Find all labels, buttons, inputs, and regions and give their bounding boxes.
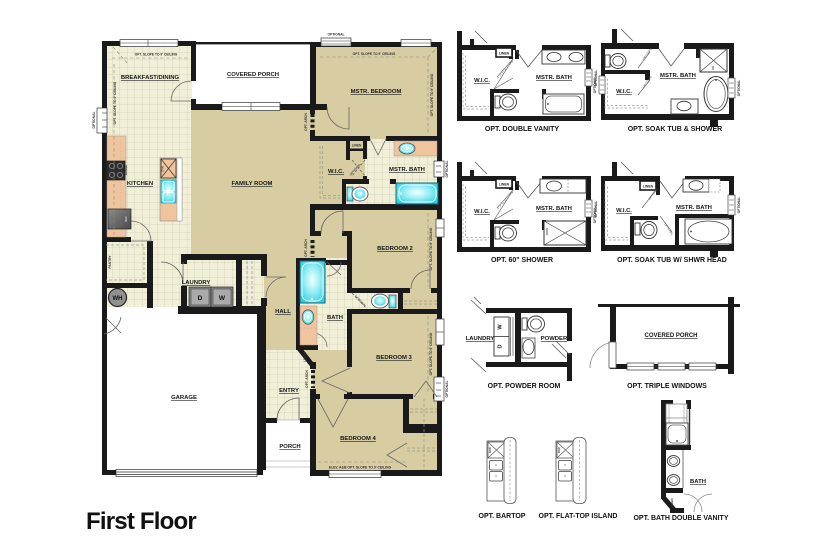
- svg-text:BEDROOM 3: BEDROOM 3: [376, 355, 412, 361]
- svg-text:ELEV. A&B OPT. SLOPE TO 9' CEI: ELEV. A&B OPT. SLOPE TO 9' CEILING: [329, 466, 392, 470]
- svg-text:D: D: [198, 295, 203, 302]
- svg-text:BATH: BATH: [690, 479, 706, 485]
- svg-text:GARAGE: GARAGE: [171, 395, 197, 401]
- svg-text:OPTIONAL: OPTIONAL: [593, 77, 597, 94]
- svg-text:LINEN: LINEN: [670, 499, 674, 508]
- svg-text:OPT. SLOPE TO 9' CEILING: OPT. SLOPE TO 9' CEILING: [113, 81, 117, 124]
- svg-text:LINEN: LINEN: [303, 352, 307, 362]
- svg-text:FAMILY ROOM: FAMILY ROOM: [232, 181, 273, 187]
- svg-text:OPT. SOAK TUB W/ SHWR HEAD: OPT. SOAK TUB W/ SHWR HEAD: [617, 257, 727, 264]
- svg-text:RANGE: RANGE: [124, 165, 128, 175]
- svg-text:OPT. ARCH: OPT. ARCH: [305, 370, 309, 388]
- svg-text:D/W: D/W: [488, 447, 492, 453]
- svg-text:OPT. SLOPE TO 9' CEILING: OPT. SLOPE TO 9' CEILING: [429, 332, 433, 375]
- svg-text:D/W: D/W: [161, 166, 165, 172]
- svg-text:MSTR. BEDROOM: MSTR. BEDROOM: [351, 89, 402, 95]
- svg-text:OPTIONAL: OPTIONAL: [92, 111, 96, 128]
- svg-text:BEDROOM 2: BEDROOM 2: [377, 246, 413, 252]
- svg-text:OPT. TRIPLE WINDOWS: OPT. TRIPLE WINDOWS: [627, 383, 707, 390]
- svg-text:COVERED PORCH: COVERED PORCH: [644, 333, 697, 339]
- svg-text:W.I.C.: W.I.C.: [616, 208, 632, 214]
- svg-text:ENTRY: ENTRY: [279, 388, 299, 394]
- svg-text:OPT. FLAT-TOP ISLAND: OPT. FLAT-TOP ISLAND: [539, 513, 618, 520]
- svg-text:D: D: [498, 344, 504, 348]
- svg-text:PANTRY: PANTRY: [108, 255, 112, 269]
- svg-text:OPT. BARTOP: OPT. BARTOP: [479, 513, 526, 520]
- svg-text:OPT. SOAK TUB & SHOWER: OPT. SOAK TUB & SHOWER: [628, 126, 723, 133]
- svg-text:MSTR. BATH: MSTR. BATH: [389, 167, 425, 173]
- svg-text:LAUNDRY: LAUNDRY: [182, 280, 211, 286]
- svg-text:MSTR. BATH: MSTR. BATH: [676, 205, 712, 211]
- svg-text:BATH: BATH: [327, 315, 343, 321]
- svg-text:REF: REF: [124, 216, 128, 222]
- svg-text:W: W: [219, 295, 226, 302]
- svg-text:LINEN: LINEN: [643, 185, 654, 189]
- svg-text:WH: WH: [113, 296, 123, 302]
- svg-text:OPT. SLOPE TO 9' CEILING: OPT. SLOPE TO 9' CEILING: [135, 53, 178, 57]
- svg-text:OPTIONAL: OPTIONAL: [593, 207, 597, 224]
- svg-text:OPT. ARCH: OPT. ARCH: [304, 113, 308, 131]
- svg-text:OPTIONAL: OPTIONAL: [445, 380, 449, 397]
- svg-text:BREAKFAST/DINING: BREAKFAST/DINING: [121, 75, 180, 81]
- svg-text:OPT. SLOPE TO 9' CEILING: OPT. SLOPE TO 9' CEILING: [430, 73, 434, 116]
- svg-text:LAUNDRY: LAUNDRY: [466, 336, 495, 342]
- svg-text:First Floor: First Floor: [86, 508, 196, 535]
- svg-text:OPTIONAL: OPTIONAL: [327, 33, 344, 37]
- svg-text:OPTIONAL: OPTIONAL: [737, 197, 741, 214]
- svg-text:POWDER: POWDER: [541, 336, 568, 342]
- svg-text:MSTR. BATH: MSTR. BATH: [660, 73, 696, 79]
- svg-text:W.I.C.: W.I.C.: [616, 89, 632, 95]
- svg-text:OPT. SLOPE TO 9' CEILING: OPT. SLOPE TO 9' CEILING: [429, 227, 433, 270]
- svg-text:BEDROOM 4: BEDROOM 4: [340, 436, 376, 442]
- svg-text:W: W: [498, 324, 504, 330]
- svg-text:D/W: D/W: [557, 447, 561, 453]
- svg-text:PORCH: PORCH: [279, 444, 300, 450]
- svg-text:OPT. 60" SHOWER: OPT. 60" SHOWER: [491, 257, 553, 264]
- svg-text:HALL: HALL: [275, 309, 291, 315]
- svg-text:W.I.C.: W.I.C.: [328, 169, 344, 175]
- svg-text:LINEN: LINEN: [352, 144, 362, 148]
- svg-text:OPTIONAL: OPTIONAL: [445, 160, 449, 177]
- svg-text:OPT. ARCH: OPT. ARCH: [304, 239, 308, 257]
- svg-text:OPT. DOUBLE VANITY: OPT. DOUBLE VANITY: [485, 126, 559, 133]
- svg-text:OPTIONAL: OPTIONAL: [737, 80, 741, 97]
- svg-text:OPT. SLOPE TO 9' CEILING: OPT. SLOPE TO 9' CEILING: [353, 52, 396, 56]
- svg-text:OPT. BATH DOUBLE VANITY: OPT. BATH DOUBLE VANITY: [633, 515, 728, 522]
- svg-text:OPT. POWDER ROOM: OPT. POWDER ROOM: [488, 383, 561, 390]
- svg-text:KITCHEN: KITCHEN: [127, 181, 153, 187]
- svg-text:COVERED PORCH: COVERED PORCH: [227, 72, 279, 78]
